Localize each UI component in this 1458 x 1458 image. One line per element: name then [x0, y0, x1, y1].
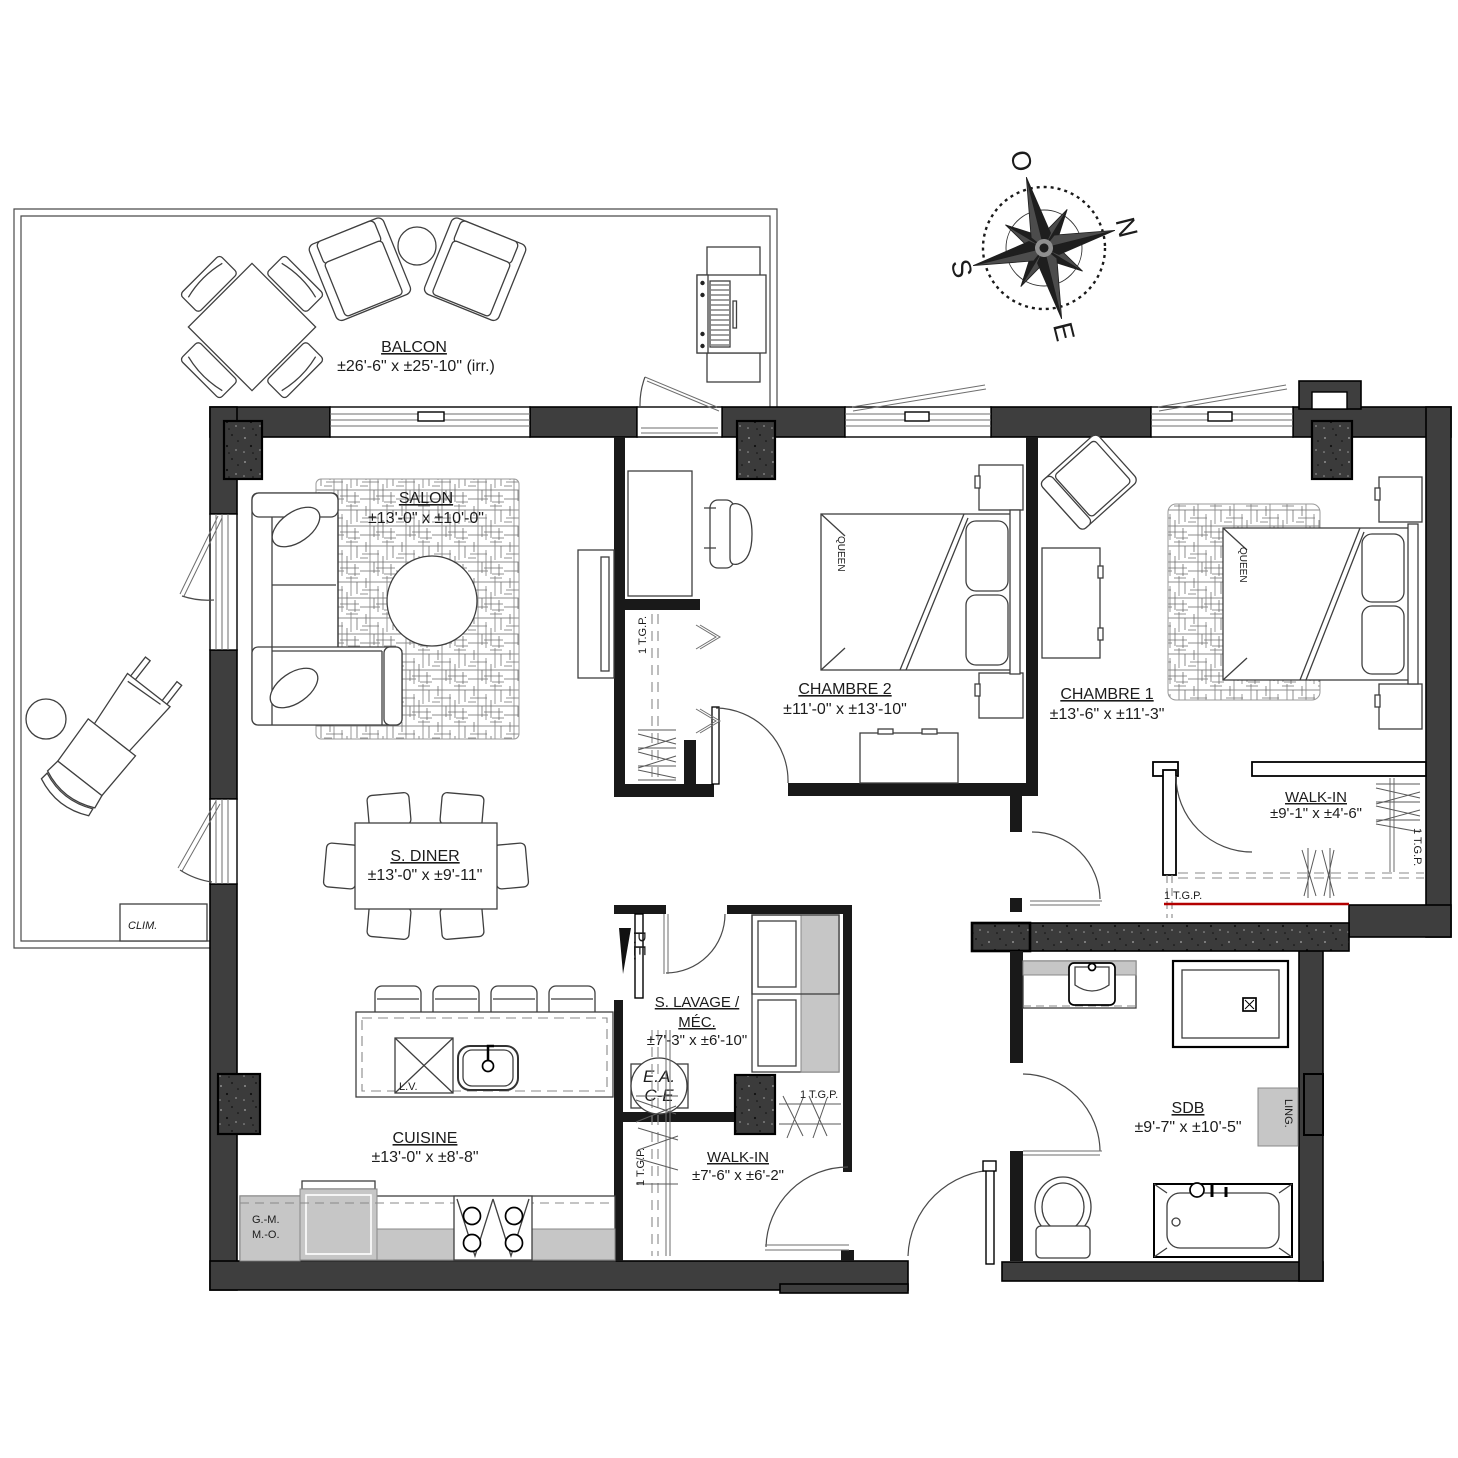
- svg-text:±9'-1" x ±4'-6": ±9'-1" x ±4'-6": [1270, 805, 1362, 822]
- svg-text:1 T.G.P.: 1 T.G.P.: [1164, 890, 1202, 902]
- svg-text:±13'-0" x ±9'-11": ±13'-0" x ±9'-11": [368, 867, 483, 884]
- svg-text:±13'-6" x ±11'-3": ±13'-6" x ±11'-3": [1050, 706, 1165, 723]
- svg-text:P.E.: P.E.: [630, 931, 649, 961]
- svg-text:LING.: LING.: [1282, 1099, 1294, 1128]
- svg-text:±7'-3" x ±6'-10": ±7'-3" x ±6'-10": [647, 1032, 747, 1049]
- svg-text:1 T.G.P.: 1 T.G.P.: [1411, 828, 1423, 866]
- svg-text:CUISINE: CUISINE: [393, 1130, 458, 1147]
- svg-text:±26'-6" x ±25'-10" (irr.): ±26'-6" x ±25'-10" (irr.): [337, 358, 495, 375]
- svg-text:CHAMBRE 2: CHAMBRE 2: [798, 681, 891, 698]
- svg-text:WALK-IN: WALK-IN: [1285, 789, 1347, 806]
- svg-text:WALK-IN: WALK-IN: [707, 1149, 769, 1166]
- svg-text:±11'-0" x ±13'-10": ±11'-0" x ±13'-10": [783, 701, 907, 718]
- svg-text:CLIM.: CLIM.: [128, 920, 157, 932]
- svg-text:±13'-0" x ±10'-0": ±13'-0" x ±10'-0": [368, 510, 484, 527]
- svg-text:CHAMBRE 1: CHAMBRE 1: [1060, 686, 1153, 703]
- svg-text:SALON: SALON: [399, 490, 453, 507]
- svg-text:S. DINER: S. DINER: [390, 848, 459, 865]
- svg-text:±9'-7" x ±10'-5": ±9'-7" x ±10'-5": [1134, 1119, 1241, 1136]
- svg-text:QUEEN: QUEEN: [1237, 547, 1248, 583]
- svg-text:±7'-6" x ±6'-2": ±7'-6" x ±6'-2": [692, 1167, 784, 1184]
- svg-text:MÉC.: MÉC.: [678, 1014, 716, 1031]
- svg-text:BALCON: BALCON: [381, 339, 447, 356]
- svg-text:L.V.: L.V.: [399, 1081, 418, 1093]
- svg-text:S. LAVAGE /: S. LAVAGE /: [655, 994, 740, 1011]
- svg-text:1 T.G.P.: 1 T.G.P.: [635, 1148, 647, 1186]
- svg-text:SDB: SDB: [1172, 1100, 1205, 1117]
- svg-text:1 T.G.P.: 1 T.G.P.: [637, 616, 649, 654]
- svg-text:G.-M.: G.-M.: [252, 1214, 280, 1226]
- svg-text:±13'-0" x ±8'-8": ±13'-0" x ±8'-8": [371, 1149, 478, 1166]
- svg-text:M.-O.: M.-O.: [252, 1229, 280, 1241]
- svg-text:1 T.G.P.: 1 T.G.P.: [800, 1089, 838, 1101]
- svg-text:QUEEN: QUEEN: [835, 536, 846, 572]
